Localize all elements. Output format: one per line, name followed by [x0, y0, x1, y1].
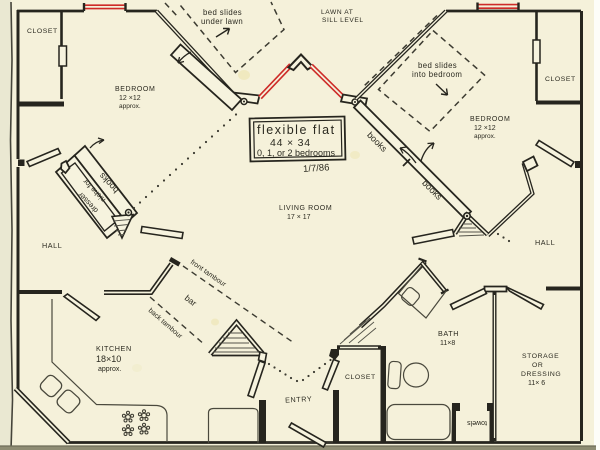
svg-text:11×8: 11×8: [440, 340, 455, 347]
svg-text:SILL LEVEL: SILL LEVEL: [322, 17, 364, 24]
svg-text:11× 6: 11× 6: [528, 380, 545, 387]
svg-text:1/7/86: 1/7/86: [303, 162, 330, 175]
svg-text:BATH: BATH: [438, 329, 459, 338]
svg-text:approx.: approx.: [474, 133, 496, 140]
svg-text:CLOSET: CLOSET: [545, 76, 576, 83]
svg-text:18×10: 18×10: [96, 354, 121, 364]
svg-text:BEDROOM: BEDROOM: [470, 116, 510, 123]
svg-text:flexible flat: flexible flat: [257, 123, 336, 137]
svg-text:DRESSING: DRESSING: [521, 371, 561, 378]
svg-text:HALL: HALL: [42, 241, 62, 250]
svg-text:KITCHEN: KITCHEN: [96, 344, 132, 353]
svg-text:bed slides: bed slides: [203, 8, 242, 17]
svg-text:CLOSET: CLOSET: [345, 374, 376, 381]
svg-text:17 × 17: 17 × 17: [287, 214, 311, 221]
svg-text:HALL: HALL: [535, 238, 555, 247]
svg-text:LIVING ROOM: LIVING ROOM: [279, 205, 332, 212]
svg-text:12 ×12: 12 ×12: [474, 125, 496, 132]
svg-text:towels: towels: [467, 419, 487, 426]
svg-text:approx.: approx.: [98, 366, 121, 373]
svg-text:12 ×12: 12 ×12: [119, 95, 141, 102]
svg-text:STORAGE: STORAGE: [522, 353, 559, 360]
svg-text:0, 1, or 2 bedrooms: 0, 1, or 2 bedrooms: [257, 148, 336, 158]
svg-text:ENTRY: ENTRY: [285, 394, 313, 404]
svg-text:LAWN AT: LAWN AT: [321, 9, 353, 16]
svg-text:under lawn: under lawn: [201, 17, 243, 26]
svg-text:into bedroom: into bedroom: [412, 70, 462, 79]
svg-text:BEDROOM: BEDROOM: [115, 86, 155, 93]
svg-text:approx.: approx.: [119, 103, 141, 110]
svg-text:bed slides: bed slides: [418, 61, 457, 70]
svg-text:OR: OR: [532, 362, 543, 369]
svg-text:CLOSET: CLOSET: [27, 28, 58, 35]
